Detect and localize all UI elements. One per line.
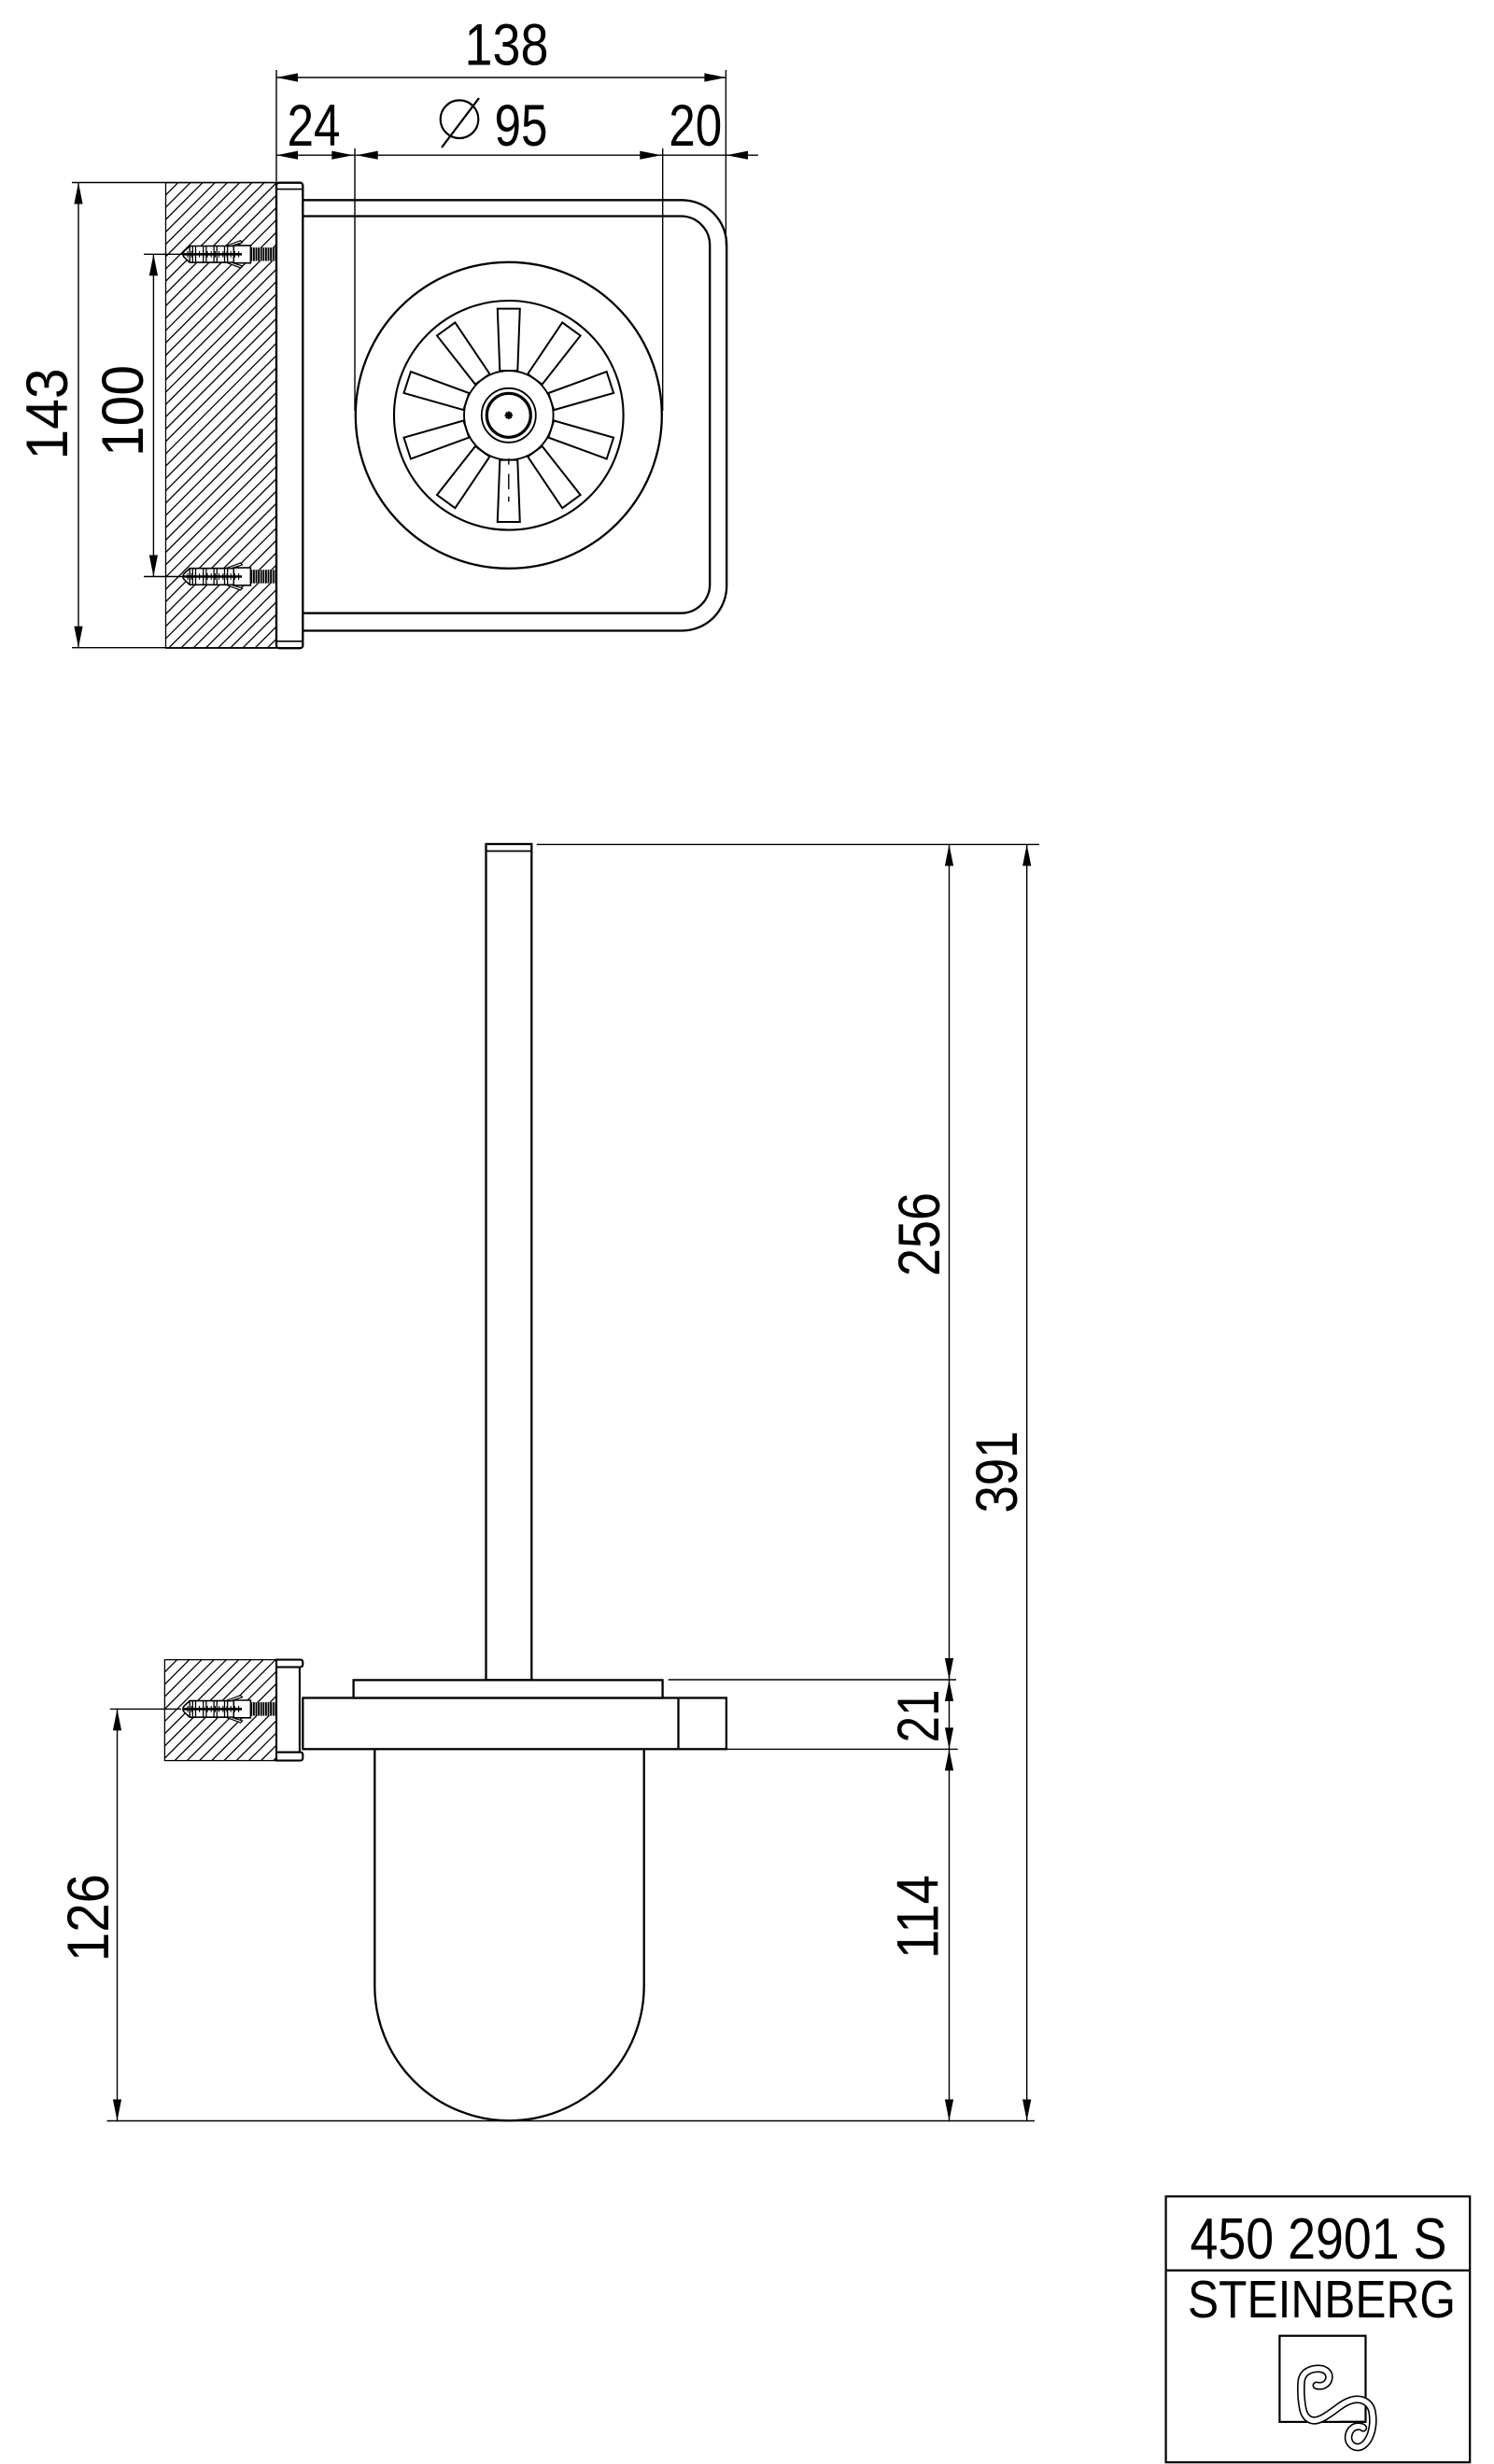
svg-text:21: 21 [886, 1690, 951, 1743]
svg-text:126: 126 [56, 1874, 121, 1962]
svg-text:391: 391 [965, 1431, 1030, 1514]
svg-text:20: 20 [669, 93, 722, 159]
svg-text:138: 138 [465, 13, 549, 78]
svg-text:450 2901 S: 450 2901 S [1191, 2207, 1447, 2272]
svg-text:95: 95 [495, 93, 548, 159]
svg-text:114: 114 [886, 1875, 951, 1959]
svg-text:100: 100 [91, 365, 156, 457]
svg-text:STEINBERG: STEINBERG [1188, 2270, 1456, 2330]
svg-text:256: 256 [887, 1192, 952, 1276]
svg-text:24: 24 [288, 93, 341, 159]
svg-text:143: 143 [15, 369, 80, 460]
